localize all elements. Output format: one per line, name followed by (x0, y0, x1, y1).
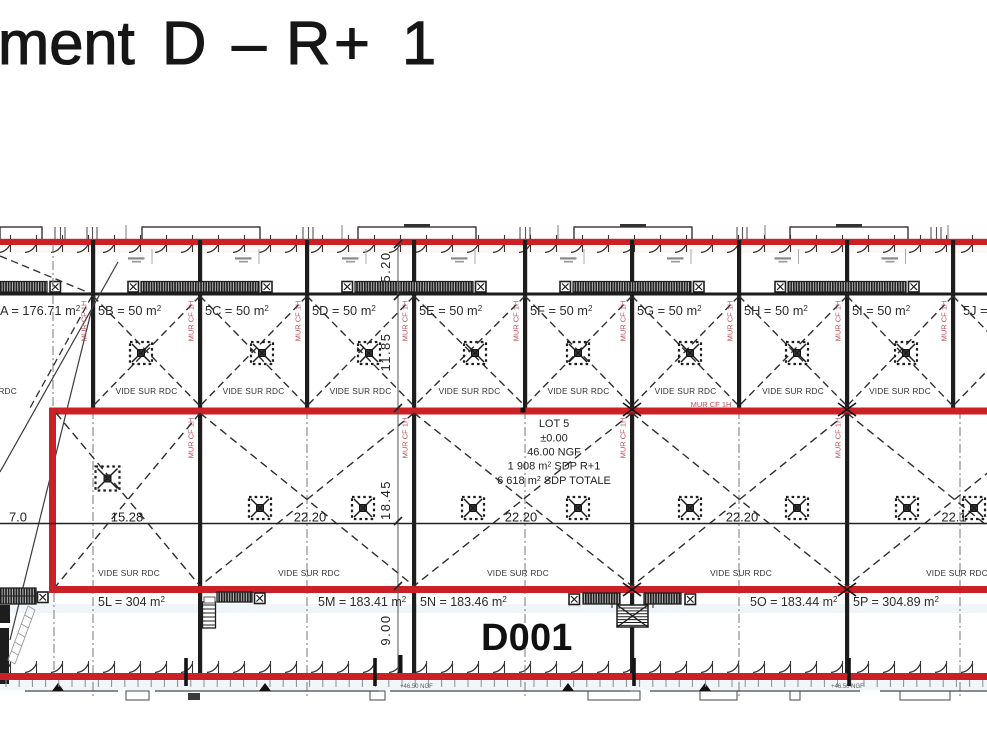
svg-text:5J = 5: 5J = 5 (963, 303, 987, 318)
svg-text:22.20: 22.20 (294, 510, 327, 525)
svg-text:5L = 304 m2: 5L = 304 m2 (98, 595, 165, 609)
svg-text:18.45: 18.45 (378, 480, 393, 520)
svg-text:5B = 50 m2: 5B = 50 m2 (98, 303, 162, 318)
svg-text:A = 176.71 m2: A = 176.71 m2 (0, 303, 81, 318)
svg-text:5I = 50 m2: 5I = 50 m2 (852, 303, 911, 318)
svg-text:15.28: 15.28 (111, 510, 144, 525)
svg-text:MUR CF 1H: MUR CF 1H (834, 301, 843, 342)
svg-text:+46.50 NGF: +46.50 NGF (400, 684, 433, 690)
svg-text:VIDE SUR RDC: VIDE SUR RDC (710, 568, 772, 578)
svg-text:5E = 50 m2: 5E = 50 m2 (419, 303, 483, 318)
svg-text:MUR CF 1H: MUR CF 1H (940, 301, 949, 342)
svg-text:46.00 NGF: 46.00 NGF (527, 447, 581, 459)
svg-text:VIDE SUR RDC: VIDE SUR RDC (487, 568, 549, 578)
svg-text:1 908 m2 SDP R+1: 1 908 m2 SDP R+1 (508, 461, 601, 473)
svg-text:22.20: 22.20 (505, 510, 538, 525)
svg-text:VIDE SUR RDC: VIDE SUR RDC (98, 568, 160, 578)
svg-text:5P = 304.89 m2: 5P = 304.89 m2 (853, 595, 939, 609)
svg-text:6 618 m2 SDP TOTALE: 6 618 m2 SDP TOTALE (497, 475, 611, 487)
svg-text:D001: D001 (481, 617, 573, 659)
svg-text:22.20: 22.20 (726, 510, 759, 525)
svg-text:VIDE SUR RDC: VIDE SUR RDC (655, 386, 717, 396)
svg-text:VIDE SUR RDC: VIDE SUR RDC (116, 386, 178, 396)
svg-text:MUR CF 1H: MUR CF 1H (401, 301, 410, 342)
svg-text:MUR CF 1H: MUR CF 1H (834, 418, 843, 459)
svg-text:MUR CF 1H: MUR CF 1H (619, 418, 628, 459)
svg-text:MUR CF 1H: MUR CF 1H (80, 301, 89, 342)
svg-text:±0.00: ±0.00 (540, 433, 567, 445)
svg-text:VIDE SUR RDC: VIDE SUR RDC (0, 386, 17, 396)
svg-text:MUR CF 1H: MUR CF 1H (187, 301, 196, 342)
svg-text:5H = 50 m2: 5H = 50 m2 (744, 303, 808, 318)
svg-text:LOT 5: LOT 5 (539, 418, 569, 430)
svg-text:5F = 50 m2: 5F = 50 m2 (530, 303, 593, 318)
svg-text:9.00: 9.00 (378, 614, 393, 645)
svg-text:5O = 183.44 m2: 5O = 183.44 m2 (750, 595, 838, 609)
svg-text:VIDE SUR RDC: VIDE SUR RDC (330, 386, 392, 396)
svg-text:5M = 183.41 m2: 5M = 183.41 m2 (318, 595, 407, 609)
svg-text:VIDE SUR RDC: VIDE SUR RDC (926, 568, 987, 578)
svg-text:5D = 50 m2: 5D = 50 m2 (312, 303, 376, 318)
svg-text:VIDE SUR RDC: VIDE SUR RDC (223, 386, 285, 396)
svg-text:VIDE SUR RDC: VIDE SUR RDC (869, 386, 931, 396)
svg-text:VIDE SUR RDC: VIDE SUR RDC (439, 386, 501, 396)
svg-text:MUR CF 1H: MUR CF 1H (512, 301, 521, 342)
svg-text:5G = 50 m2: 5G = 50 m2 (637, 303, 702, 318)
svg-text:7.0: 7.0 (9, 510, 27, 525)
svg-text:MUR CF 1H: MUR CF 1H (726, 301, 735, 342)
svg-text:VIDE SUR RDC: VIDE SUR RDC (548, 386, 610, 396)
svg-text:5N = 183.46 m2: 5N = 183.46 m2 (420, 595, 507, 609)
svg-text:MUR CF 1H: MUR CF 1H (619, 301, 628, 342)
svg-text:MUR CF 1H: MUR CF 1H (294, 301, 303, 342)
svg-text:VIDE SUR RDC: VIDE SUR RDC (762, 386, 824, 396)
svg-text:5.20: 5.20 (378, 251, 393, 282)
svg-text:11.85: 11.85 (378, 332, 393, 371)
svg-text:5C = 50 m2: 5C = 50 m2 (205, 303, 269, 318)
svg-text:VIDE SUR RDC: VIDE SUR RDC (278, 568, 340, 578)
